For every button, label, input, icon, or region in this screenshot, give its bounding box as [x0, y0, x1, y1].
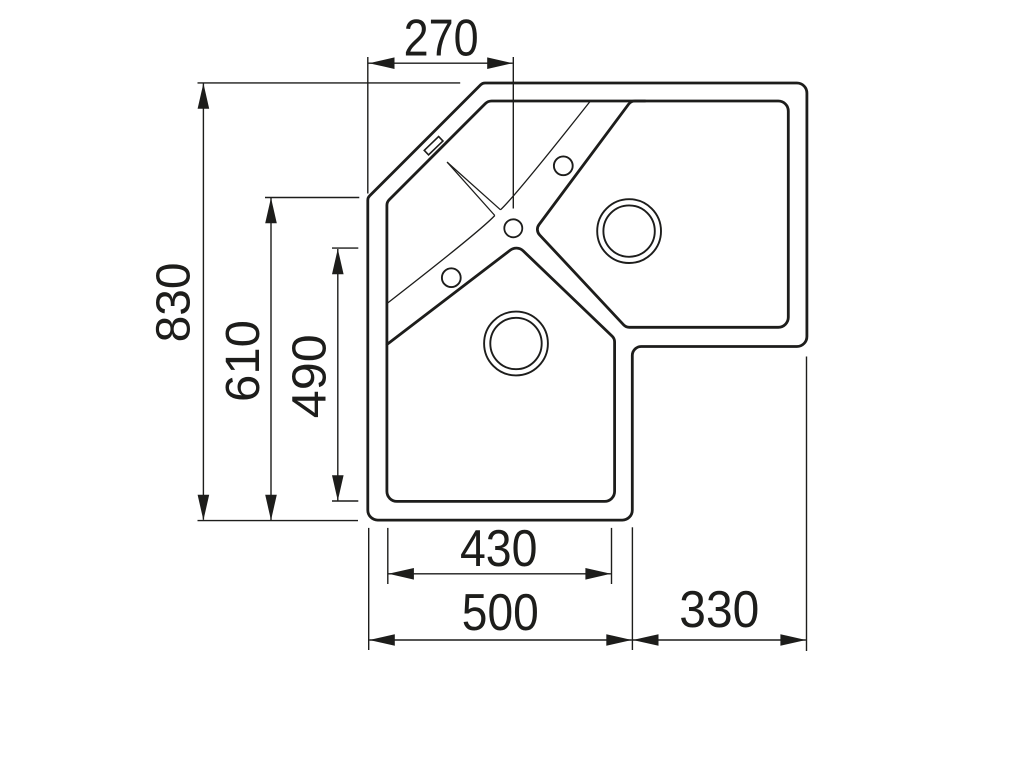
svg-text:830: 830 — [147, 262, 200, 342]
svg-text:610: 610 — [217, 320, 270, 402]
svg-text:500: 500 — [462, 584, 539, 642]
svg-text:430: 430 — [460, 520, 538, 578]
svg-text:330: 330 — [679, 581, 759, 639]
svg-text:490: 490 — [283, 334, 336, 418]
svg-text:270: 270 — [404, 10, 479, 68]
